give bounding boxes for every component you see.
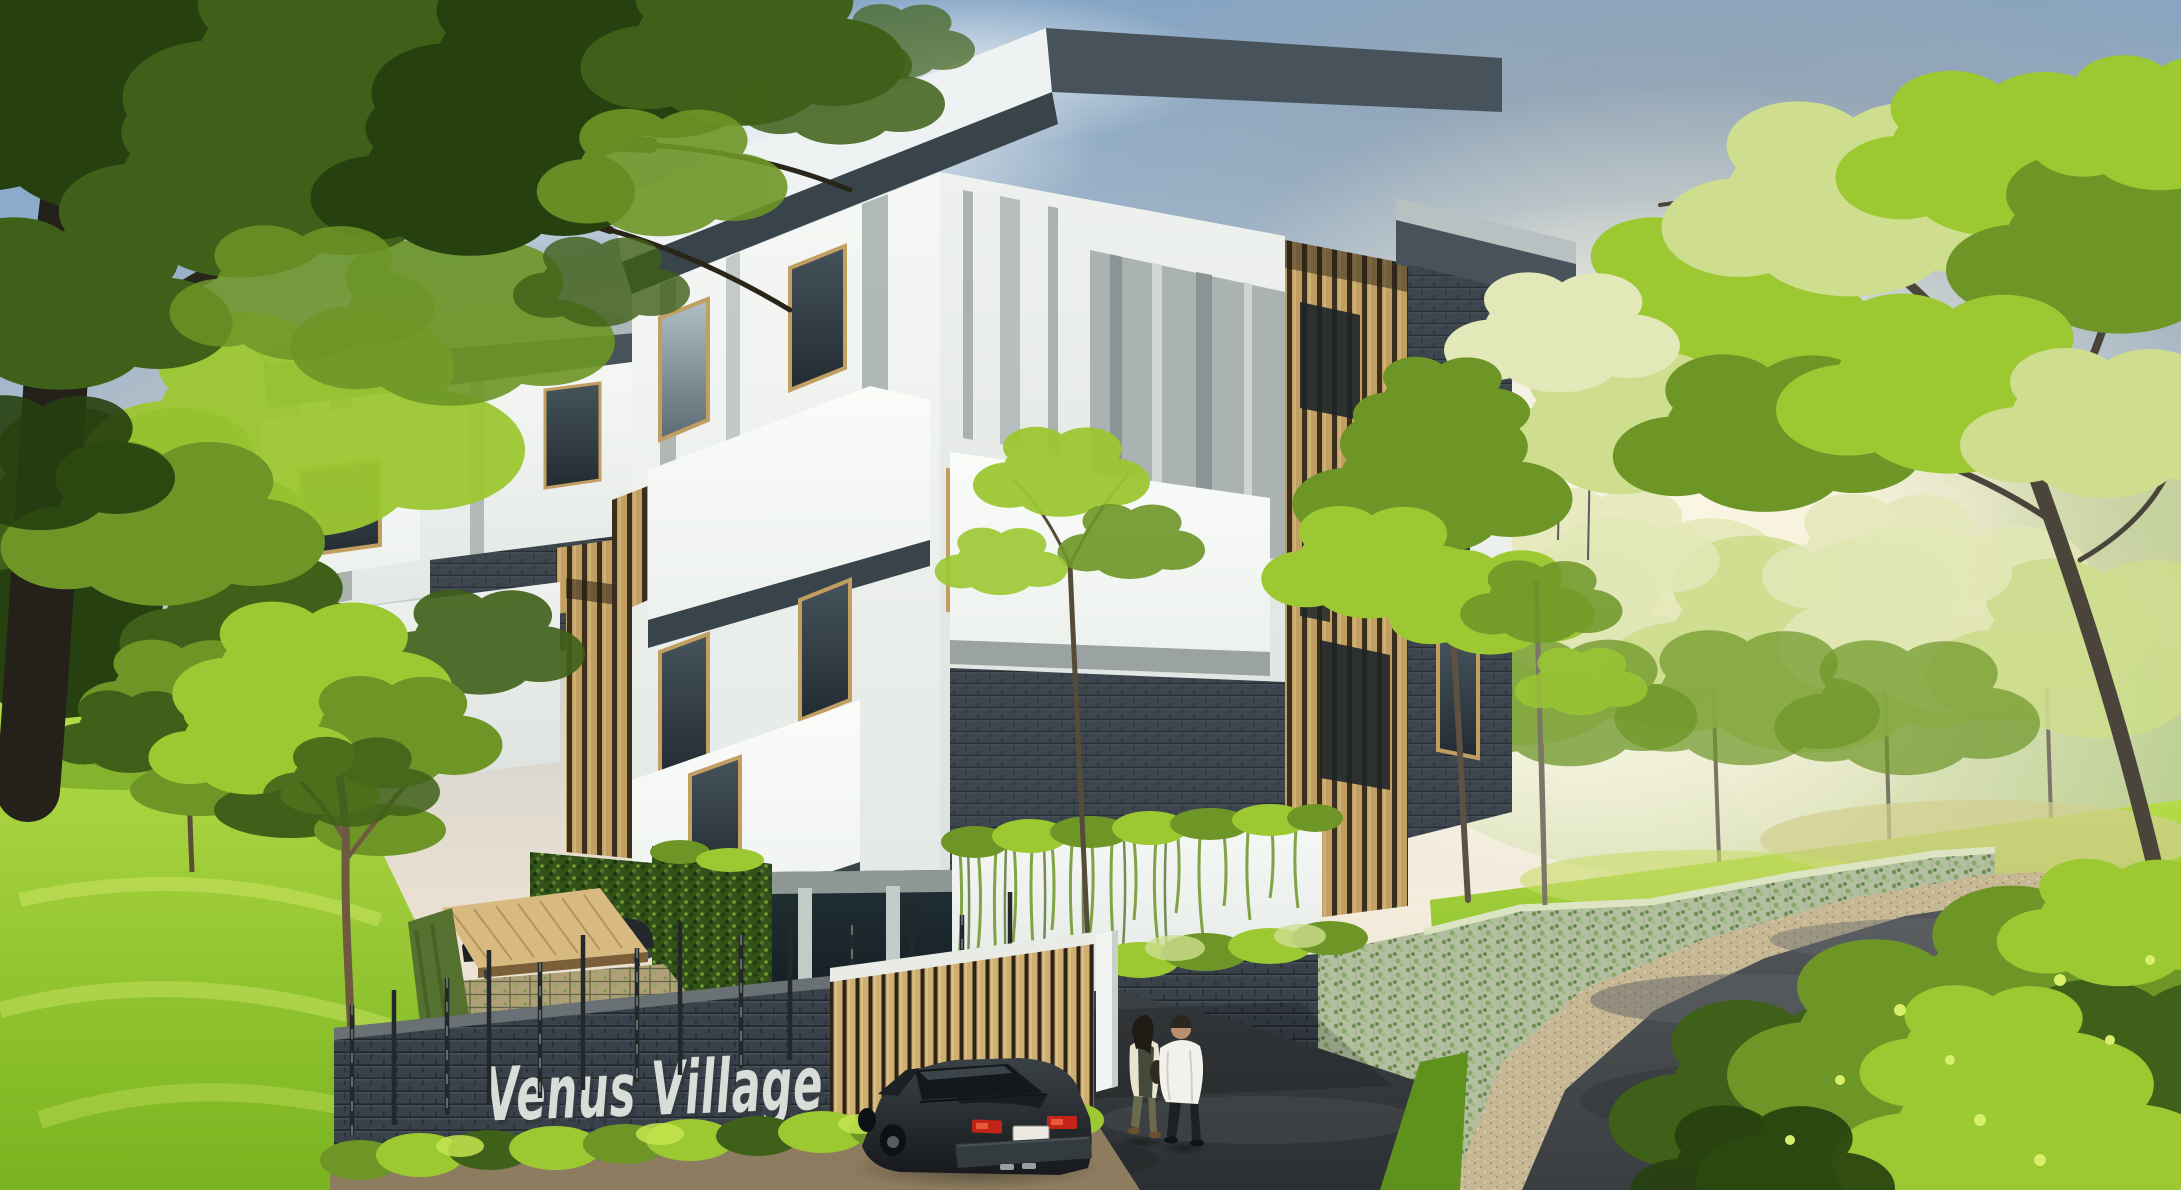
slat-opening	[1300, 302, 1360, 420]
exhaust-tip	[1000, 1164, 1014, 1170]
architectural-rendering: Venus Village Venus Village	[0, 0, 2181, 1190]
window	[790, 246, 845, 390]
exhaust-tip	[1022, 1163, 1036, 1169]
scene-svg: Venus Village Venus Village	[0, 0, 2181, 1190]
window	[660, 299, 708, 440]
wheel	[858, 1108, 876, 1132]
window	[800, 580, 850, 720]
white-jacket	[1159, 1040, 1203, 1104]
slat-opening	[1320, 640, 1390, 790]
balcony-railing	[612, 486, 648, 616]
